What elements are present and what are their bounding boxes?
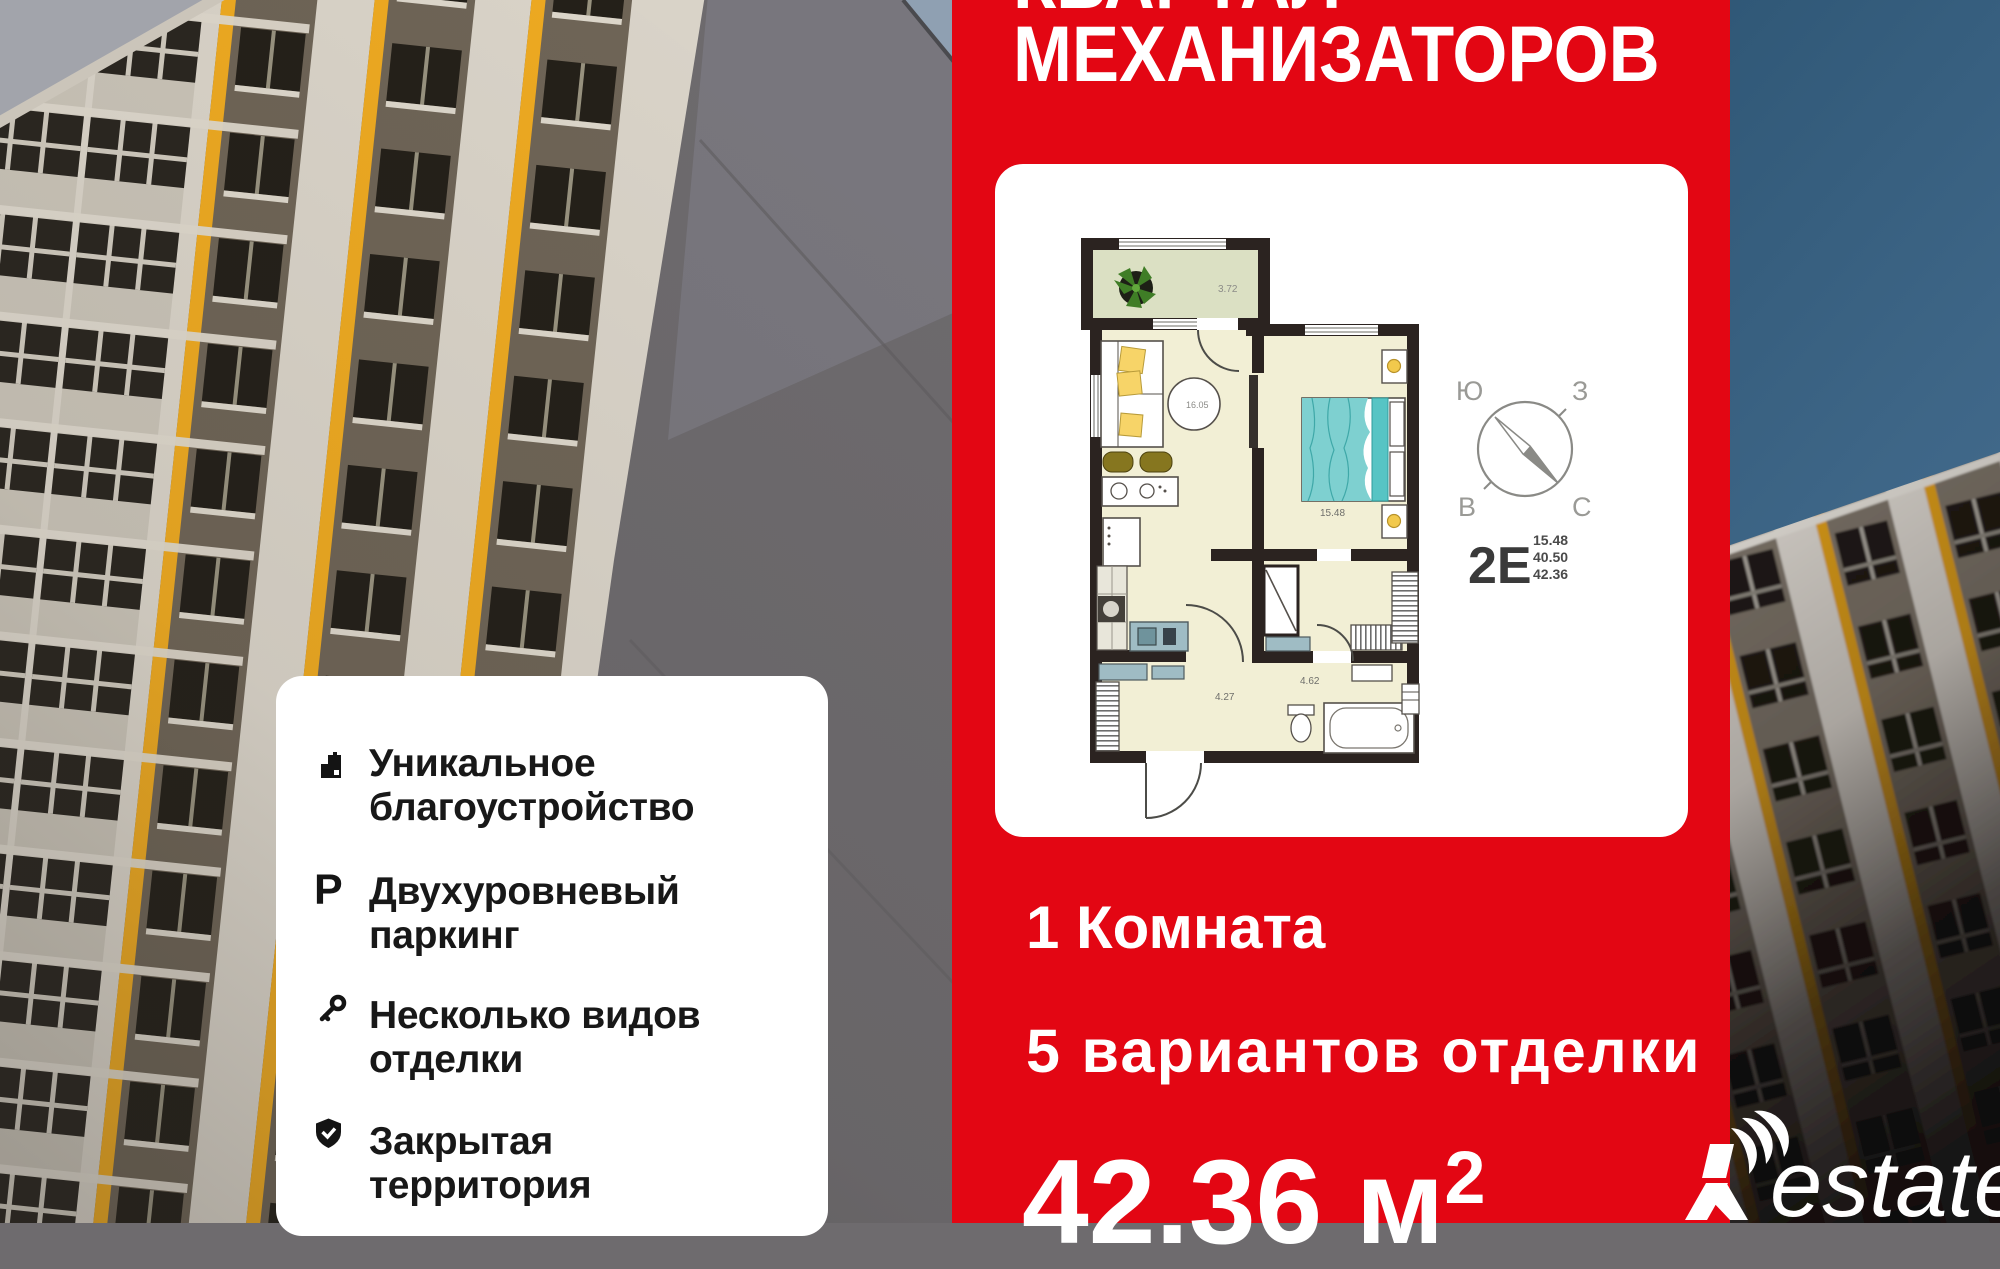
svg-text:Ю: Ю (1456, 376, 1483, 406)
svg-text:3.72: 3.72 (1218, 284, 1238, 295)
svg-text:С: С (1572, 492, 1592, 522)
svg-text:16.05: 16.05 (1186, 400, 1209, 410)
svg-text:15.48: 15.48 (1533, 532, 1568, 548)
svg-text:40.50: 40.50 (1533, 549, 1568, 565)
svg-text:2Е: 2Е (1468, 537, 1532, 595)
svg-text:4.62: 4.62 (1300, 676, 1320, 687)
svg-text:З: З (1572, 376, 1588, 406)
svg-text:42.36: 42.36 (1533, 566, 1568, 582)
svg-text:estate: estate (1770, 1131, 2000, 1223)
svg-text:В: В (1458, 492, 1476, 522)
svg-text:15.48: 15.48 (1320, 508, 1345, 519)
svg-text:4.27: 4.27 (1215, 692, 1235, 703)
